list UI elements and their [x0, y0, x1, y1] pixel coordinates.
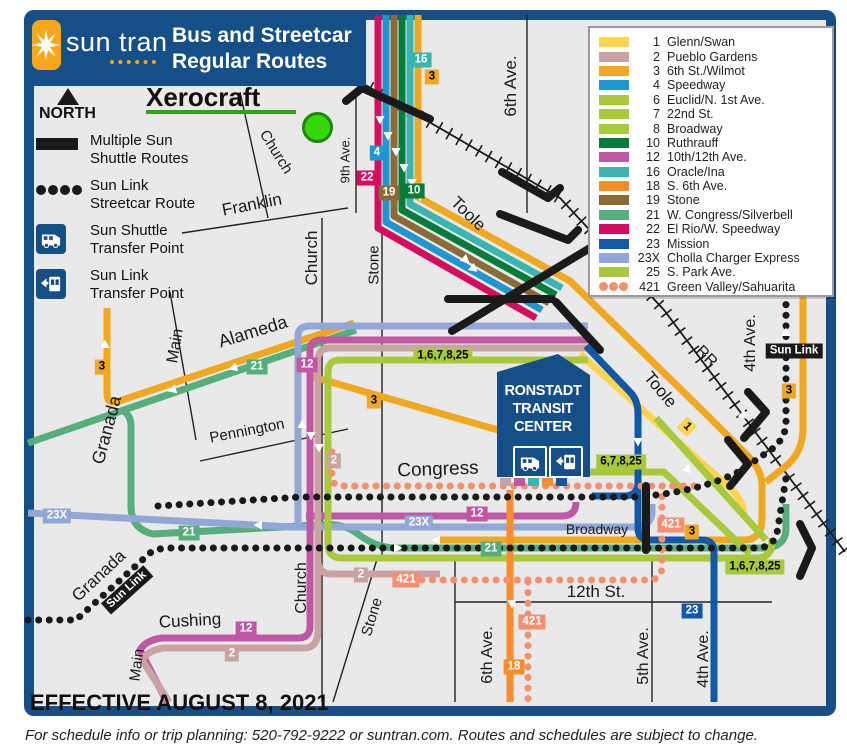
sunburst-icon [32, 20, 61, 70]
legend-route-number: 23 [629, 237, 660, 251]
route-badge: 421 [657, 518, 684, 533]
map-legend-item: Multiple SunShuttle Routes [36, 132, 236, 168]
north-arrow-icon [57, 88, 79, 105]
route-badge: 2 [327, 454, 341, 469]
legend-route-number: 19 [629, 193, 660, 207]
legend-route-name: Pueblo Gardens [667, 50, 757, 64]
route-badge: 1,6,7,8,25 [413, 349, 472, 364]
header-banner: sun tran Bus and Streetcar Regular Route… [28, 14, 366, 86]
legend-row: 25S. Park Ave. [590, 265, 832, 279]
street-label: 4th Ave. [742, 314, 760, 372]
legend-route-number: 1 [629, 35, 660, 49]
legend-route-name: Oracle/Ina [667, 165, 725, 179]
route-badge: 12 [297, 358, 318, 373]
route-badge: 6,7,8,25 [596, 455, 646, 470]
legend-route-name: Speedway [667, 78, 725, 92]
street-label: Church [293, 562, 311, 614]
legend-route-number: 7 [629, 107, 660, 121]
tram-icon [36, 269, 66, 299]
xerocraft-pointer-line [146, 110, 296, 114]
street-label: Cushing [158, 609, 221, 632]
street-label: 6th Ave. [501, 55, 521, 116]
route-color-swatch [599, 66, 629, 76]
legend-row: 1Glenn/Swan [590, 35, 832, 49]
route-badge: 21 [247, 360, 268, 375]
route-color-swatch [599, 95, 629, 105]
tram-icon [36, 269, 82, 299]
route-badge: 19 [379, 186, 400, 201]
legend-route-number: 16 [629, 165, 660, 179]
map-legend-text: Sun LinkTransfer Point [90, 267, 184, 303]
map-symbols-legend: Multiple SunShuttle RoutesSun LinkStreet… [36, 132, 236, 312]
street-label: 5th Ave. [635, 627, 653, 685]
legend-route-name: Green Valley/Sahuarita [667, 280, 795, 294]
legend-route-name: S. Park Ave. [667, 265, 736, 279]
legend-route-name: Glenn/Swan [667, 35, 735, 49]
legend-route-number: 421 [629, 280, 660, 294]
legend-route-number: 18 [629, 179, 660, 193]
route-color-swatch [599, 224, 629, 234]
black-dots-swatch [36, 185, 82, 195]
legend-route-name: S. 6th Ave. [667, 179, 727, 193]
bus-icon [36, 224, 82, 254]
title-line-2: Regular Routes [172, 49, 352, 75]
route-color-swatch [599, 52, 629, 62]
route-badge: 21 [179, 526, 200, 541]
footer-note: For schedule info or trip planning: 520-… [25, 727, 758, 744]
street-label: 6th Ave. [479, 626, 497, 684]
legend-route-name: W. Congress/Silverbell [667, 208, 793, 222]
legend-row: 10Ruthrauff [590, 136, 832, 150]
route-badge: 2 [354, 568, 368, 583]
route-badge: 23X [405, 516, 433, 531]
legend-route-name: El Rio/W. Speedway [667, 222, 780, 236]
bus-icon [513, 446, 547, 478]
bus-icon [36, 224, 66, 254]
logo-dotted-underline [110, 60, 156, 64]
legend-route-number: 12 [629, 150, 660, 164]
map-legend-text: Sun LinkStreetcar Route [90, 177, 195, 213]
legend-route-name: Stone [667, 193, 700, 207]
legend-route-name: 10th/12th Ave. [667, 150, 747, 164]
route-badge: 3 [367, 394, 381, 409]
legend-row: 1210th/12th Ave. [590, 150, 832, 164]
map-legend-item: Sun LinkTransfer Point [36, 267, 236, 303]
legend-route-number: 22 [629, 222, 660, 236]
legend-row: 16Oracle/Ina [590, 165, 832, 179]
route-badge: 1,6,7,8,25 [725, 560, 784, 575]
transit-bay-strip [500, 478, 567, 486]
route-badge: 3 [95, 360, 109, 375]
route-color-swatch [599, 37, 629, 47]
legend-row: 23XCholla Charger Express [590, 251, 832, 265]
route-badge: 4 [370, 146, 384, 161]
suntran-logo [32, 20, 61, 70]
effective-date: EFFECTIVE AUGUST 8, 2021 [30, 690, 329, 716]
legend-route-name: 6th St./Wilmot [667, 64, 745, 78]
ronstadt-transit-center-label: RONSTADT TRANSIT CENTER [498, 382, 588, 436]
legend-route-number: 8 [629, 122, 660, 136]
route-color-swatch [599, 138, 629, 148]
route-color-swatch [599, 80, 629, 90]
street-label: Stone [366, 245, 383, 284]
legend-route-number: 2 [629, 50, 660, 64]
xerocraft-marker [302, 112, 333, 143]
legend-route-number: 4 [629, 78, 660, 92]
route-badge: 10 [404, 184, 425, 199]
legend-route-number: 6 [629, 93, 660, 107]
legend-row: 2Pueblo Gardens [590, 49, 832, 63]
route-color-swatch [599, 167, 629, 177]
route-badge: 23X [43, 509, 71, 524]
route-color-swatch [599, 152, 629, 162]
legend-route-number: 3 [629, 64, 660, 78]
street-label: 12th St. [567, 582, 626, 602]
black-bar-swatch [36, 138, 78, 150]
map-legend-item: Sun ShuttleTransfer Point [36, 222, 236, 258]
legend-row: 722nd St. [590, 107, 832, 121]
route-badge: 22 [357, 171, 378, 186]
legend-row: 36th St./Wilmot [590, 64, 832, 78]
legend-row: 4Speedway [590, 78, 832, 92]
streetcar-icon [549, 446, 583, 478]
route-color-swatch [599, 124, 629, 134]
map-legend-text: Multiple SunShuttle Routes [90, 132, 188, 168]
legend-route-name: Broadway [667, 122, 723, 136]
route-badge: 12 [467, 507, 488, 522]
map-title: Bus and Streetcar Regular Routes [172, 23, 352, 75]
black-bar-swatch [36, 134, 82, 150]
legend-row: 8Broadway [590, 121, 832, 135]
route-color-swatch [599, 253, 629, 263]
route-badge: 421 [392, 573, 419, 588]
legend-row: 421Green Valley/Sahuarita [590, 280, 832, 294]
route-badge: 3 [685, 525, 699, 540]
route-color-swatch [599, 267, 629, 277]
route-color-swatch [599, 210, 629, 220]
route-badge: 12 [236, 622, 257, 637]
legend-route-number: 10 [629, 136, 660, 150]
legend-row: 23Mission [590, 236, 832, 250]
suntran-wordmark: sun tran [66, 27, 168, 58]
route-color-swatch [599, 181, 629, 191]
street-label: Congress [397, 458, 479, 483]
route-color-swatch [599, 195, 629, 205]
street-label: Church [302, 231, 322, 286]
map-legend-text: Sun ShuttleTransfer Point [90, 222, 184, 258]
legend-row: 18S. 6th Ave. [590, 179, 832, 193]
legend-route-number: 23X [629, 251, 660, 265]
street-label: 9th Ave. [338, 137, 353, 184]
legend-row: 6Euclid/N. 1st Ave. [590, 93, 832, 107]
legend-row: 19Stone [590, 193, 832, 207]
route-badge: 2 [225, 647, 239, 662]
route-badge: 16 [411, 53, 432, 68]
route-color-swatch [599, 109, 629, 119]
xerocraft-label: Xerocraft [146, 82, 260, 113]
legend-route-name: Cholla Charger Express [667, 251, 800, 265]
route-badge: 23 [682, 604, 703, 619]
route-color-swatch [599, 282, 629, 292]
street-label: Broadway [566, 521, 628, 537]
legend-route-name: Mission [667, 237, 709, 251]
legend-route-name: Euclid/N. 1st Ave. [667, 93, 765, 107]
title-line-1: Bus and Streetcar [172, 23, 352, 49]
route-badge: 21 [481, 542, 502, 557]
legend-route-name: Ruthrauff [667, 136, 718, 150]
routes-legend-box: 1Glenn/Swan2Pueblo Gardens36th St./Wilmo… [588, 26, 834, 297]
legend-route-number: 25 [629, 265, 660, 279]
legend-route-name: 22nd St. [667, 107, 714, 121]
route-badge: 3 [782, 384, 796, 399]
black-dots-swatch [36, 179, 82, 195]
route-color-swatch [599, 239, 629, 249]
map-legend-item: Sun LinkStreetcar Route [36, 177, 236, 213]
route-badge: 3 [425, 70, 439, 85]
route-badge: Sun Link [766, 344, 823, 359]
north-label: NORTH [39, 105, 96, 123]
route-badge: 421 [518, 615, 545, 630]
street-label: 4th Ave. [695, 630, 713, 688]
legend-row: 21W. Congress/Silverbell [590, 208, 832, 222]
legend-row: 22El Rio/W. Speedway [590, 222, 832, 236]
legend-route-number: 21 [629, 208, 660, 222]
route-badge: 18 [504, 660, 525, 675]
